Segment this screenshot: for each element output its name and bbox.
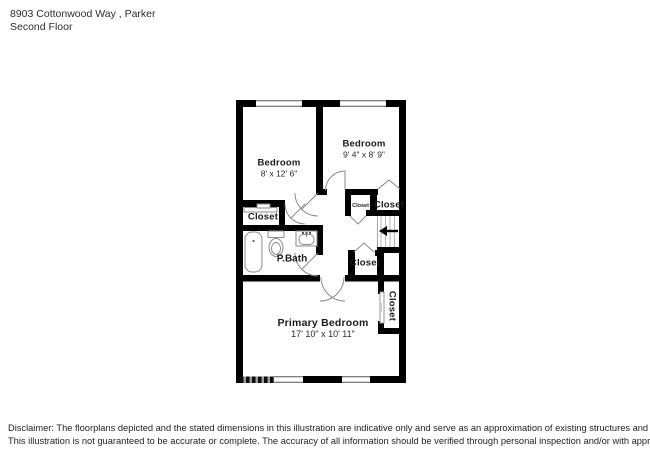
door-arc (285, 204, 305, 224)
stairs-direction-arrow-icon (379, 226, 398, 236)
room-label-closet-primary: Closet (387, 291, 398, 321)
room-label-primary-bedroom: Primary Bedroom 17' 10" x 10' 11" (277, 317, 368, 339)
sink (296, 231, 317, 246)
stairs (378, 216, 399, 247)
floorplan-page: { "header": { "address": "8903 Cottonwoo… (0, 0, 650, 460)
bifold-door (354, 243, 374, 252)
room-name: Primary Bedroom (277, 317, 368, 329)
window (342, 377, 370, 383)
sliding-door (379, 292, 384, 323)
disclaimer-line-2: This illustration is not guaranteed to b… (8, 435, 650, 448)
window (340, 101, 386, 107)
door-arc (295, 193, 318, 216)
bathtub (245, 232, 262, 272)
bifold-door (378, 180, 400, 189)
room-label-closet-left: Closet (248, 212, 278, 223)
room-dims: 9' 4" x 8' 9" (342, 150, 385, 160)
room-name: Bedroom (257, 158, 300, 169)
room-label-closet-small: Closet (352, 203, 369, 209)
room-name: Bedroom (342, 139, 385, 150)
room-dims: 17' 10" x 10' 11" (277, 329, 368, 339)
room-label-bedroom-left: Bedroom 8' x 12' 6" (257, 158, 300, 179)
disclaimer-line-1: Disclaimer: The floorplans depicted and … (8, 422, 650, 435)
door-arc (326, 171, 346, 191)
room-label-bath: P.Bath (277, 254, 307, 265)
room-dims: 8' x 12' 6" (257, 169, 300, 179)
room-label-closet-mid: Closet (350, 258, 380, 269)
window (256, 101, 302, 107)
room-label-closet-top-right: Closet (374, 200, 404, 211)
bifold-door (350, 216, 366, 224)
paned-window (240, 377, 274, 384)
floorplan-drawing (0, 0, 650, 460)
room-label-bedroom-right: Bedroom 9' 4" x 8' 9" (342, 139, 385, 160)
window (274, 377, 303, 383)
